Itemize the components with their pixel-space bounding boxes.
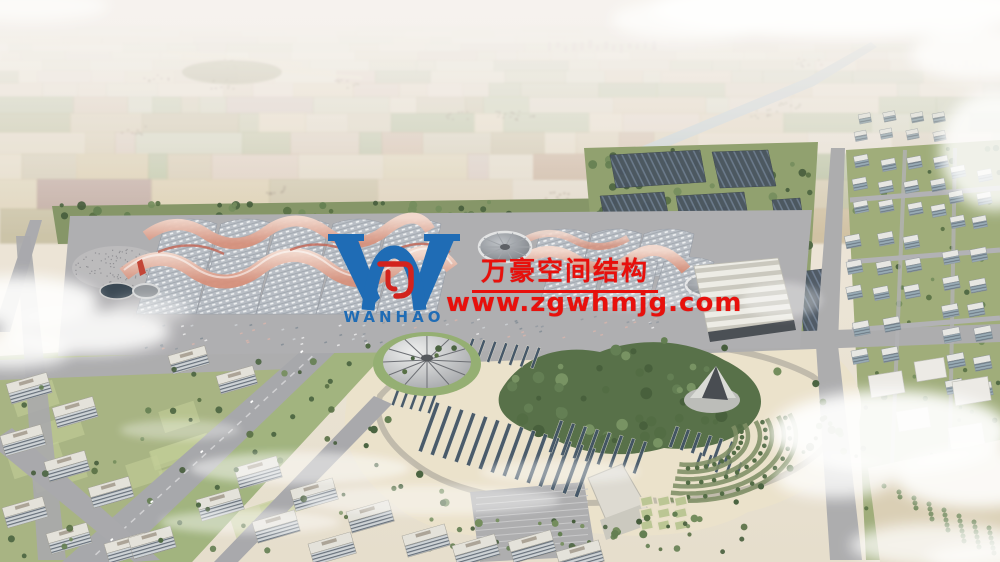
aerial-render-canvas: WANHAO 万豪空间结构 www.zgwhmjg.com	[0, 0, 1000, 562]
warm-tone-overlay	[0, 0, 1000, 562]
rendered-scene	[0, 0, 1000, 562]
